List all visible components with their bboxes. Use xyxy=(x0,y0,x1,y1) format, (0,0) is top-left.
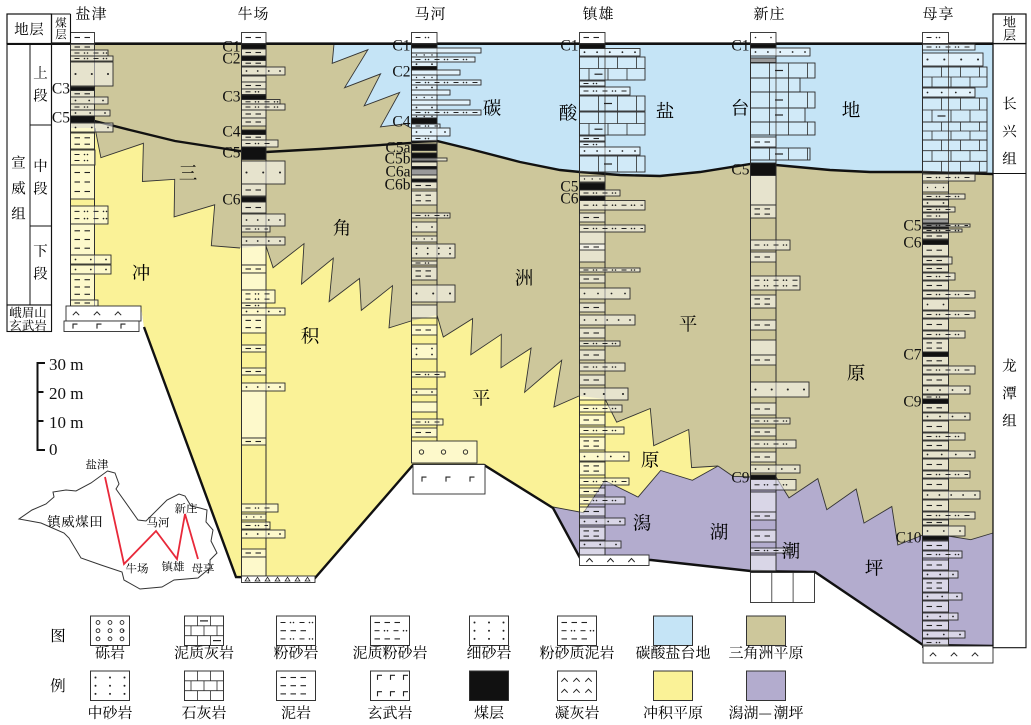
svg-text:0: 0 xyxy=(49,440,58,459)
svg-text:C9: C9 xyxy=(731,469,749,486)
svg-text:C7: C7 xyxy=(903,346,921,363)
svg-text:C3: C3 xyxy=(222,88,240,105)
svg-text:C2: C2 xyxy=(222,50,240,67)
svg-text:C6: C6 xyxy=(903,234,921,251)
svg-text:C6b: C6b xyxy=(385,176,411,193)
svg-text:C4: C4 xyxy=(392,113,410,130)
svg-text:C9: C9 xyxy=(903,393,921,410)
svg-text:C6: C6 xyxy=(222,191,240,208)
svg-text:C4: C4 xyxy=(222,123,240,140)
svg-text:C5: C5 xyxy=(903,217,921,234)
svg-text:C5: C5 xyxy=(52,109,70,126)
svg-text:10 m: 10 m xyxy=(49,413,83,432)
svg-text:C5: C5 xyxy=(731,161,749,178)
svg-text:30 m: 30 m xyxy=(49,355,83,374)
svg-text:C1: C1 xyxy=(392,37,410,54)
svg-text:C10: C10 xyxy=(896,529,922,546)
svg-text:C1: C1 xyxy=(731,37,749,54)
svg-text:C6: C6 xyxy=(560,190,578,207)
svg-text:C5: C5 xyxy=(222,144,240,161)
svg-text:C2: C2 xyxy=(392,63,410,80)
svg-text:C3: C3 xyxy=(52,80,70,97)
svg-text:C1: C1 xyxy=(560,37,578,54)
svg-text:20 m: 20 m xyxy=(49,384,83,403)
